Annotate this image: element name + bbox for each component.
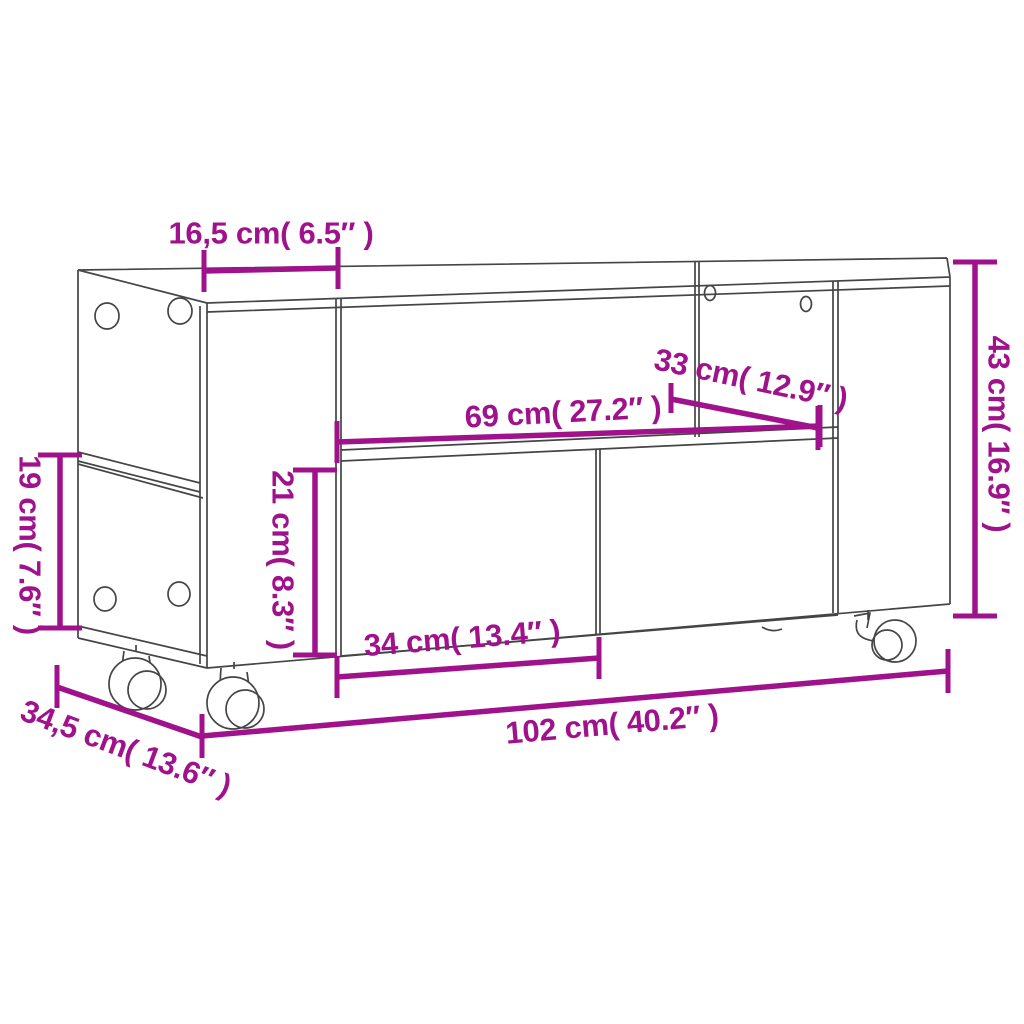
compartment-right-wall [833,281,838,613]
caster-wheel [109,658,161,710]
caster-wheel [207,677,259,729]
dimension-compartment-width: 69 cm( 27.2″ ) [337,389,820,463]
shelf-pin-hole [168,582,190,606]
top-board [78,258,950,312]
dimension-side-shelf-height: 19 cm( 7.6″ ) [13,455,83,635]
dim-label-front-panel-height: 21 cm( 8.3″ ) [266,470,301,650]
shelf-pin-hole [168,298,192,324]
vertical-divider [336,299,341,657]
caster-front-right [854,610,916,662]
dim-label-door-width: 34 cm( 13.4″ ) [363,613,562,663]
dim-label-compartment-width: 69 cm( 27.2″ ) [464,389,662,434]
furniture-outline [78,258,950,729]
tv-stand-dimension-diagram: 16,5 cm( 6.5″ ) 69 cm( 27.2″ ) 33 cm( 12… [0,0,1024,1024]
dimension-front-panel-height: 21 cm( 8.3″ ) [266,470,338,655]
shelf-pin-hole [94,587,116,611]
back-panel-hole [801,297,812,312]
dimension-line [204,268,338,271]
shelf-pin-hole [95,303,119,329]
dimension-overall-height: 43 cm( 16.9″ ) [953,262,1017,616]
dim-label-top-left-section-width: 16,5 cm( 6.5″ ) [168,216,373,251]
dim-label-compartment-depth: 33 cm( 12.9″ ) [651,341,851,416]
caster-wheel-peek [762,627,782,631]
dimension-annotations: 16,5 cm( 6.5″ ) 69 cm( 27.2″ ) 33 cm( 12… [13,216,1017,804]
dim-label-overall-height: 43 cm( 16.9″ ) [982,336,1017,533]
caster-rear-right [762,627,782,631]
caster-bracket [854,610,874,641]
dimension-overall-width: 102 cm( 40.2″ ) [202,649,948,758]
door-gap [596,449,600,635]
back-panel-hole [705,286,716,301]
dimension-door-width: 34 cm( 13.4″ ) [337,613,599,698]
caster-wheel [874,620,916,662]
caster-front-left [207,662,264,729]
dim-label-side-shelf-height: 19 cm( 7.6″ ) [13,455,48,635]
dimension-top-left-section-width: 16,5 cm( 6.5″ ) [168,216,373,293]
side-shelf [78,452,203,498]
caster-back-left [109,645,166,710]
